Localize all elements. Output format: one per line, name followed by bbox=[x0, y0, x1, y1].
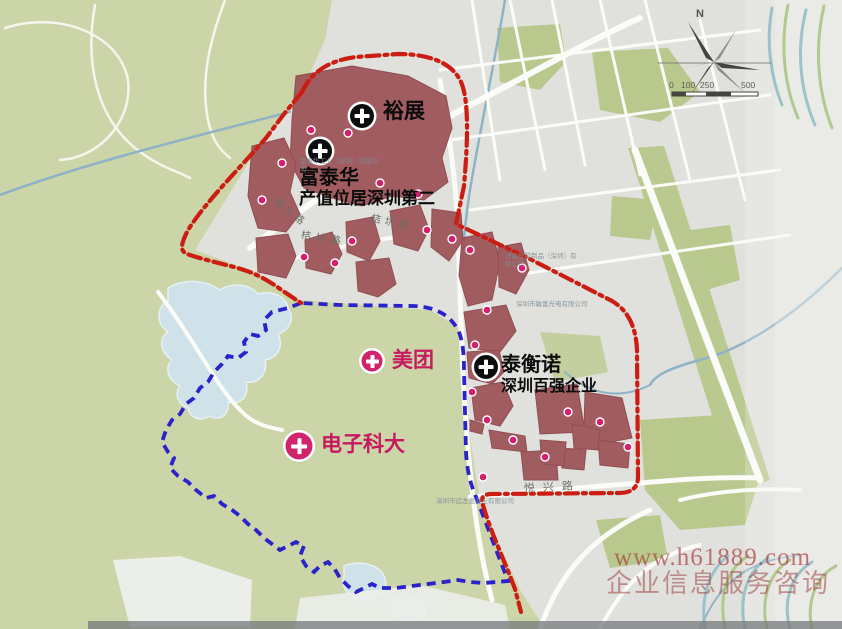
landmark-marker-yuzhan[interactable] bbox=[350, 104, 374, 128]
landmark-label-uestc: 电子科大 bbox=[321, 434, 405, 455]
company-label-yuanlong-concrete: 深圳市远龙混凝土有限公司 bbox=[436, 498, 518, 506]
scale-tick-500: 500 bbox=[741, 81, 755, 90]
landmark-label-yuzhan: 裕展 bbox=[383, 101, 425, 122]
company-label-futaihua-industry: 富泰华工业（深圳）有限公司 bbox=[300, 158, 380, 174]
basemap bbox=[0, 0, 842, 629]
company-label-yangjin-plastics: 洋金塑胶制品（深圳）有限公司 bbox=[505, 253, 577, 269]
scale-tick-0: 0 bbox=[669, 81, 674, 90]
map-canvas[interactable]: 裕展 富泰华 产值位居深圳第二 泰衡诺 深圳百强企业 美团 电子科大 观光路 桔… bbox=[0, 0, 842, 629]
scale-bar bbox=[672, 92, 758, 96]
edge-fade bbox=[745, 0, 842, 629]
scale-tick-100: 100 bbox=[681, 81, 695, 90]
bottom-road-band bbox=[88, 621, 842, 629]
company-label-minfu-optoelectronics: 深圳市敏富光电有限公司 bbox=[516, 301, 666, 309]
plus-icon bbox=[350, 104, 374, 128]
plus-icon bbox=[286, 433, 313, 460]
watermark-caption: 企业信息服务咨询 bbox=[606, 571, 830, 597]
scale-tick-250: 250 bbox=[700, 81, 714, 90]
landmark-subtitle-taihengnuo: 深圳百强企业 bbox=[501, 379, 597, 395]
landmark-marker-uestc[interactable] bbox=[286, 433, 313, 460]
landmark-subtitle-futaihua: 产值位居深圳第二 bbox=[299, 190, 435, 207]
landmark-marker-meituan[interactable] bbox=[362, 351, 383, 372]
landmark-label-taihengnuo: 泰衡诺 bbox=[501, 355, 561, 375]
plus-icon bbox=[362, 351, 383, 372]
compass-north-label: N bbox=[696, 8, 704, 20]
plus-icon bbox=[474, 355, 498, 379]
landmark-label-meituan: 美团 bbox=[392, 350, 434, 371]
landmark-marker-taihengnuo[interactable] bbox=[474, 355, 498, 379]
watermark-url: www.h61889.com bbox=[614, 545, 811, 570]
